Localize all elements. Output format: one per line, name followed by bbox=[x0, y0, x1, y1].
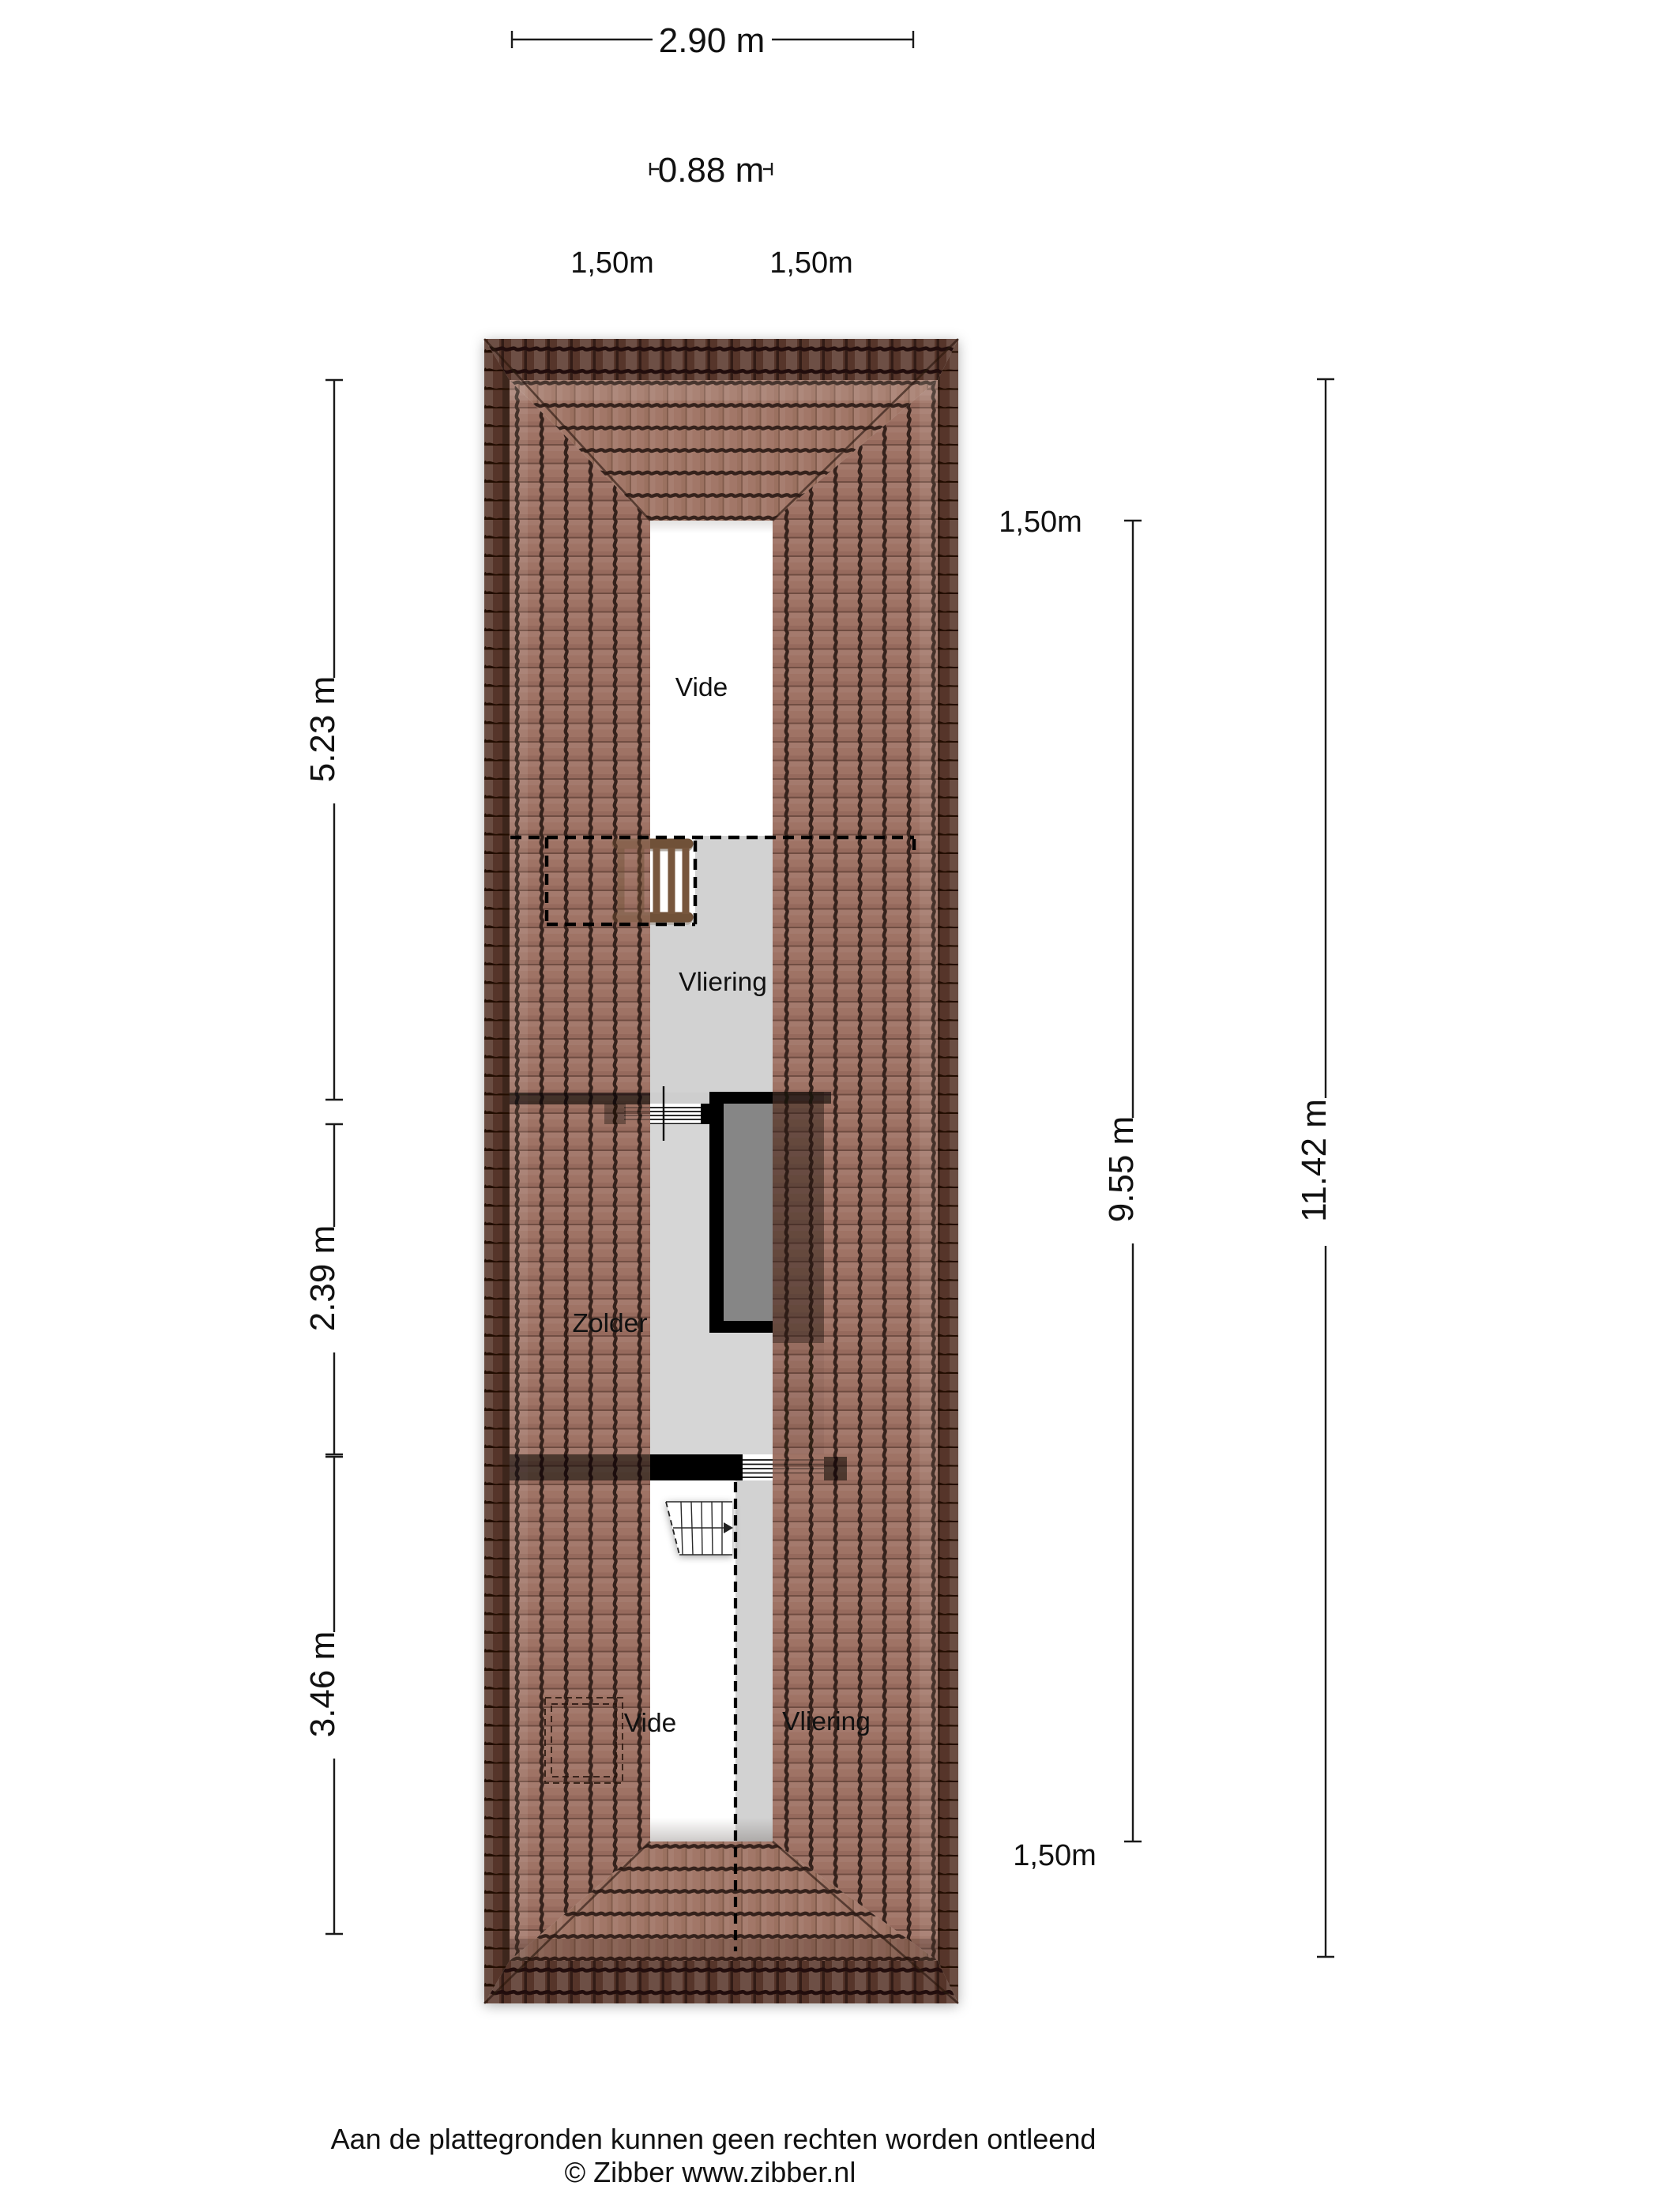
svg-text:1,50m: 1,50m bbox=[1013, 1839, 1097, 1872]
svg-text:Vide: Vide bbox=[624, 1709, 676, 1738]
svg-text:2.39 m: 2.39 m bbox=[303, 1225, 342, 1332]
svg-text:Aan de plattegronden kunnen ge: Aan de plattegronden kunnen geen rechten… bbox=[331, 2123, 1097, 2155]
svg-text:© Zibber www.zibber.nl: © Zibber www.zibber.nl bbox=[565, 2156, 856, 2188]
svg-text:Vliering: Vliering bbox=[782, 1707, 871, 1736]
svg-text:Vliering: Vliering bbox=[679, 968, 767, 997]
svg-text:Vide: Vide bbox=[675, 673, 728, 702]
svg-text:2.90 m: 2.90 m bbox=[659, 21, 766, 60]
svg-text:9.55 m: 9.55 m bbox=[1102, 1116, 1141, 1223]
svg-text:1,50m: 1,50m bbox=[769, 246, 853, 280]
svg-text:1,50m: 1,50m bbox=[999, 506, 1082, 539]
svg-text:11.42 m: 11.42 m bbox=[1295, 1099, 1334, 1222]
svg-text:Zolder: Zolder bbox=[573, 1309, 648, 1338]
svg-text:5.23 m: 5.23 m bbox=[303, 676, 342, 783]
svg-text:3.46 m: 3.46 m bbox=[303, 1631, 342, 1738]
svg-text:0.88 m: 0.88 m bbox=[658, 151, 765, 190]
svg-text:1,50m: 1,50m bbox=[570, 246, 654, 280]
